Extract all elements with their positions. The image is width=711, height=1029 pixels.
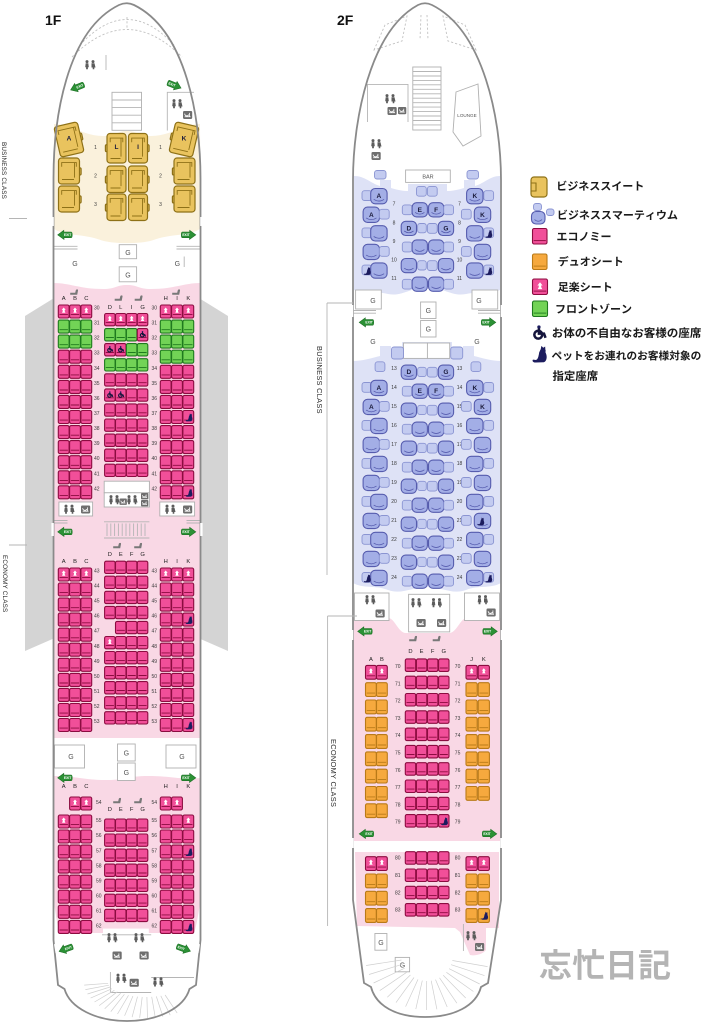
svg-text:60: 60 bbox=[96, 894, 102, 900]
svg-text:45: 45 bbox=[94, 599, 100, 605]
svg-text:33: 33 bbox=[94, 351, 100, 357]
svg-text:70: 70 bbox=[455, 664, 461, 670]
svg-text:30: 30 bbox=[94, 306, 100, 312]
svg-text:19: 19 bbox=[391, 480, 397, 486]
svg-text:73: 73 bbox=[395, 716, 401, 722]
svg-text:E: E bbox=[418, 207, 423, 214]
svg-text:35: 35 bbox=[94, 381, 100, 387]
svg-text:81: 81 bbox=[455, 873, 461, 879]
svg-text:2: 2 bbox=[159, 174, 162, 180]
svg-text:37: 37 bbox=[152, 411, 158, 417]
svg-text:23: 23 bbox=[391, 556, 397, 562]
svg-text:47: 47 bbox=[94, 629, 100, 635]
svg-text:G: G bbox=[443, 225, 448, 232]
svg-text:14: 14 bbox=[391, 385, 397, 391]
svg-text:75: 75 bbox=[395, 751, 401, 757]
svg-text:40: 40 bbox=[152, 456, 158, 462]
svg-text:F: F bbox=[434, 207, 438, 214]
svg-text:18: 18 bbox=[391, 461, 397, 467]
svg-text:BUSINESS CLASS: BUSINESS CLASS bbox=[315, 346, 324, 414]
svg-text:61: 61 bbox=[152, 909, 158, 915]
svg-text:39: 39 bbox=[152, 441, 158, 447]
svg-text:57: 57 bbox=[152, 848, 158, 854]
svg-text:20: 20 bbox=[391, 499, 397, 505]
svg-text:44: 44 bbox=[152, 584, 158, 590]
svg-text:ECONOMY CLASS: ECONOMY CLASS bbox=[329, 739, 338, 807]
svg-text:A: A bbox=[67, 136, 72, 143]
svg-text:52: 52 bbox=[152, 704, 158, 710]
svg-text:K: K bbox=[472, 193, 477, 200]
svg-text:ECONOMY CLASS: ECONOMY CLASS bbox=[1, 555, 8, 612]
svg-text:G: G bbox=[175, 261, 180, 268]
svg-text:79: 79 bbox=[395, 820, 401, 826]
svg-text:2F: 2F bbox=[337, 12, 354, 28]
svg-text:G: G bbox=[426, 308, 431, 315]
svg-text:G: G bbox=[426, 327, 431, 334]
svg-text:74: 74 bbox=[395, 733, 401, 739]
svg-text:G: G bbox=[370, 298, 375, 305]
svg-text:24: 24 bbox=[457, 575, 463, 581]
svg-text:33: 33 bbox=[152, 351, 158, 357]
svg-text:70: 70 bbox=[395, 664, 401, 670]
svg-text:79: 79 bbox=[455, 820, 461, 826]
svg-text:20: 20 bbox=[457, 499, 463, 505]
svg-text:7: 7 bbox=[393, 202, 396, 208]
svg-text:54: 54 bbox=[96, 800, 102, 806]
svg-text:L: L bbox=[115, 144, 119, 151]
svg-text:K: K bbox=[480, 212, 485, 219]
svg-text:45: 45 bbox=[152, 599, 158, 605]
svg-text:59: 59 bbox=[96, 878, 102, 884]
svg-text:82: 82 bbox=[455, 890, 461, 896]
svg-text:56: 56 bbox=[96, 833, 102, 839]
svg-text:24: 24 bbox=[391, 575, 397, 581]
svg-text:50: 50 bbox=[94, 674, 100, 680]
svg-text:54: 54 bbox=[152, 800, 158, 806]
svg-text:K: K bbox=[480, 404, 485, 411]
svg-text:52: 52 bbox=[94, 704, 100, 710]
svg-text:BAR: BAR bbox=[422, 175, 433, 181]
svg-text:G: G bbox=[378, 940, 383, 947]
svg-text:46: 46 bbox=[94, 614, 100, 620]
svg-text:3: 3 bbox=[94, 202, 97, 208]
svg-text:G: G bbox=[125, 273, 130, 280]
svg-text:49: 49 bbox=[152, 659, 158, 665]
svg-text:58: 58 bbox=[152, 863, 158, 869]
svg-text:10: 10 bbox=[391, 258, 397, 264]
svg-text:71: 71 bbox=[455, 681, 461, 687]
svg-text:78: 78 bbox=[455, 802, 461, 808]
svg-text:32: 32 bbox=[94, 336, 100, 342]
svg-text:36: 36 bbox=[152, 396, 158, 402]
svg-text:HIK: HIK bbox=[164, 784, 191, 790]
svg-text:8: 8 bbox=[458, 220, 461, 226]
svg-text:50: 50 bbox=[152, 674, 158, 680]
svg-text:G: G bbox=[370, 339, 375, 346]
svg-text:A: A bbox=[369, 404, 374, 411]
svg-text:42: 42 bbox=[152, 486, 158, 492]
svg-text:K: K bbox=[182, 136, 187, 143]
svg-text:G: G bbox=[443, 369, 448, 376]
svg-text:G: G bbox=[68, 754, 73, 761]
svg-text:80: 80 bbox=[395, 856, 401, 862]
svg-text:7: 7 bbox=[458, 202, 461, 208]
svg-text:17: 17 bbox=[391, 442, 397, 448]
svg-text:80: 80 bbox=[455, 856, 461, 862]
svg-text:55: 55 bbox=[96, 818, 102, 824]
svg-text:76: 76 bbox=[455, 768, 461, 774]
svg-text:1: 1 bbox=[159, 145, 162, 151]
svg-text:77: 77 bbox=[455, 785, 461, 791]
svg-text:47: 47 bbox=[152, 629, 158, 635]
svg-text:58: 58 bbox=[96, 863, 102, 869]
svg-text:48: 48 bbox=[152, 644, 158, 650]
svg-text:16: 16 bbox=[391, 423, 397, 429]
svg-text:72: 72 bbox=[395, 699, 401, 705]
svg-text:22: 22 bbox=[391, 537, 397, 543]
svg-text:F: F bbox=[434, 388, 438, 395]
svg-text:30: 30 bbox=[152, 306, 158, 312]
svg-text:I: I bbox=[137, 144, 139, 151]
svg-text:77: 77 bbox=[395, 785, 401, 791]
svg-text:56: 56 bbox=[152, 833, 158, 839]
svg-text:E: E bbox=[418, 388, 423, 395]
svg-text:55: 55 bbox=[152, 818, 158, 824]
svg-text:31: 31 bbox=[152, 321, 158, 327]
svg-text:60: 60 bbox=[152, 894, 158, 900]
svg-text:61: 61 bbox=[96, 909, 102, 915]
svg-text:G: G bbox=[124, 770, 129, 777]
svg-text:A: A bbox=[369, 212, 374, 219]
svg-text:1: 1 bbox=[94, 145, 97, 151]
svg-text:2: 2 bbox=[94, 174, 97, 180]
svg-text:51: 51 bbox=[94, 689, 100, 695]
svg-text:34: 34 bbox=[152, 366, 158, 372]
svg-text:46: 46 bbox=[152, 614, 158, 620]
svg-text:40: 40 bbox=[94, 456, 100, 462]
svg-text:81: 81 bbox=[395, 873, 401, 879]
svg-text:G: G bbox=[72, 261, 77, 268]
svg-text:41: 41 bbox=[94, 471, 100, 477]
svg-text:G: G bbox=[474, 339, 479, 346]
svg-text:G: G bbox=[179, 754, 184, 761]
svg-text:11: 11 bbox=[391, 276, 396, 282]
svg-text:59: 59 bbox=[152, 878, 158, 884]
svg-text:G: G bbox=[124, 751, 129, 758]
svg-text:A: A bbox=[377, 385, 382, 392]
svg-text:83: 83 bbox=[395, 908, 401, 914]
svg-text:39: 39 bbox=[94, 441, 100, 447]
svg-text:22: 22 bbox=[457, 537, 463, 543]
svg-text:D: D bbox=[406, 369, 411, 376]
svg-text:72: 72 bbox=[455, 699, 461, 705]
svg-text:21: 21 bbox=[391, 518, 397, 524]
svg-text:82: 82 bbox=[395, 890, 401, 896]
svg-text:32: 32 bbox=[152, 336, 158, 342]
svg-text:18: 18 bbox=[457, 461, 463, 467]
svg-text:62: 62 bbox=[152, 924, 158, 930]
svg-text:83: 83 bbox=[455, 908, 461, 914]
svg-text:38: 38 bbox=[152, 426, 158, 432]
svg-text:G: G bbox=[476, 298, 481, 305]
svg-text:9: 9 bbox=[393, 239, 396, 245]
svg-text:D: D bbox=[406, 225, 411, 232]
svg-text:43: 43 bbox=[94, 569, 100, 575]
svg-text:10: 10 bbox=[457, 258, 463, 264]
svg-text:43: 43 bbox=[152, 569, 158, 575]
svg-text:9: 9 bbox=[458, 239, 461, 245]
svg-text:51: 51 bbox=[152, 689, 158, 695]
svg-text:11: 11 bbox=[457, 276, 462, 282]
svg-text:57: 57 bbox=[96, 848, 102, 854]
svg-text:13: 13 bbox=[391, 366, 397, 372]
svg-text:BUSINESS CLASS: BUSINESS CLASS bbox=[0, 142, 7, 199]
svg-text:HIK: HIK bbox=[164, 296, 191, 302]
svg-text:16: 16 bbox=[457, 423, 463, 429]
svg-text:13: 13 bbox=[457, 366, 463, 372]
svg-text:8: 8 bbox=[393, 220, 396, 226]
svg-text:38: 38 bbox=[94, 426, 100, 432]
svg-text:HIK: HIK bbox=[164, 559, 191, 565]
svg-text:42: 42 bbox=[94, 486, 100, 492]
svg-text:A: A bbox=[377, 193, 382, 200]
svg-text:74: 74 bbox=[455, 733, 461, 739]
svg-text:75: 75 bbox=[455, 751, 461, 757]
svg-text:34: 34 bbox=[94, 366, 100, 372]
svg-text:14: 14 bbox=[457, 385, 463, 391]
svg-text:53: 53 bbox=[94, 719, 100, 725]
svg-text:71: 71 bbox=[395, 681, 401, 687]
svg-text:49: 49 bbox=[94, 659, 100, 665]
svg-text:62: 62 bbox=[96, 924, 102, 930]
svg-text:K: K bbox=[472, 385, 477, 392]
svg-text:31: 31 bbox=[94, 321, 100, 327]
svg-text:G: G bbox=[125, 250, 130, 257]
svg-text:36: 36 bbox=[94, 396, 100, 402]
svg-text:76: 76 bbox=[395, 768, 401, 774]
svg-text:3: 3 bbox=[159, 202, 162, 208]
svg-text:48: 48 bbox=[94, 644, 100, 650]
svg-text:44: 44 bbox=[94, 584, 100, 590]
svg-text:53: 53 bbox=[152, 719, 158, 725]
svg-text:78: 78 bbox=[395, 802, 401, 808]
svg-text:15: 15 bbox=[391, 404, 397, 410]
svg-text:73: 73 bbox=[455, 716, 461, 722]
svg-text:LOUNGE: LOUNGE bbox=[457, 113, 476, 118]
svg-text:41: 41 bbox=[152, 471, 158, 477]
svg-text:35: 35 bbox=[152, 381, 158, 387]
svg-text:37: 37 bbox=[94, 411, 100, 417]
svg-text:1F: 1F bbox=[45, 12, 62, 28]
